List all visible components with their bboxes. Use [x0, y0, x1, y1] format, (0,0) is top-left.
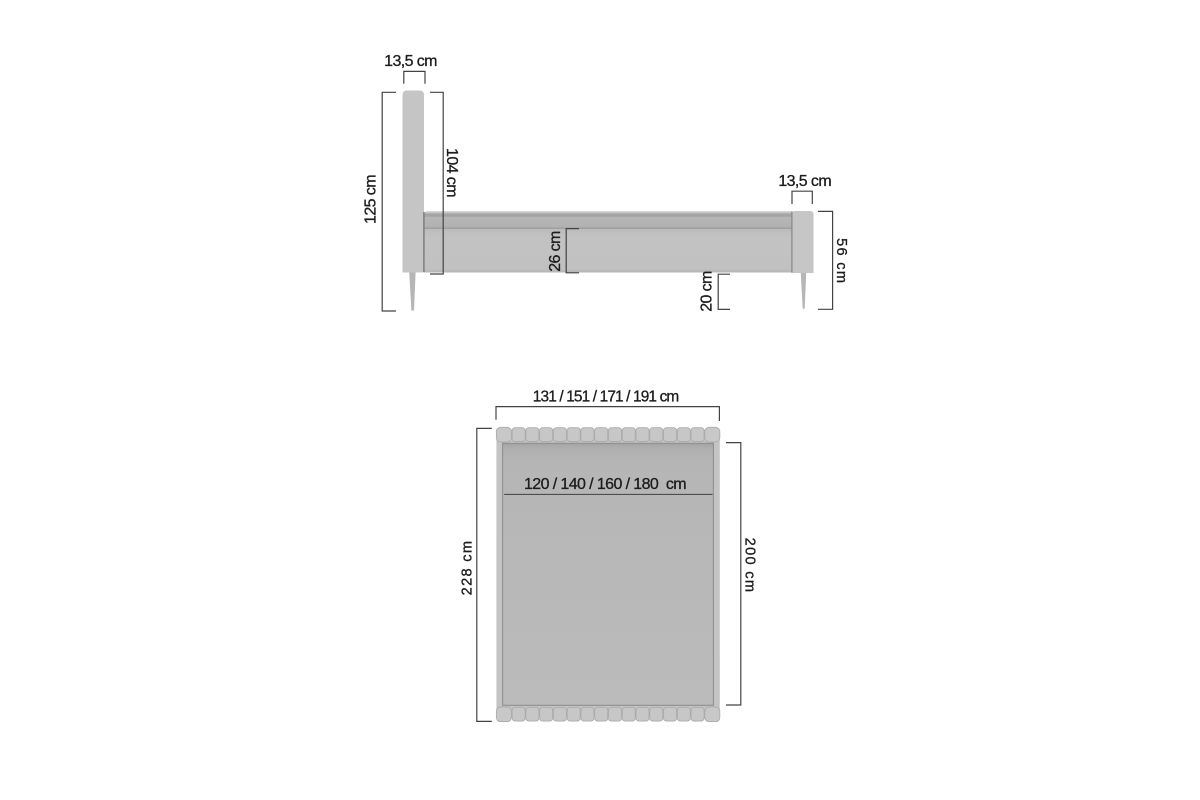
- svg-text:56 cm: 56 cm: [833, 238, 849, 284]
- svg-text:228 cm: 228 cm: [459, 540, 475, 596]
- svg-text:104 cm: 104 cm: [443, 148, 460, 197]
- svg-text:20 cm: 20 cm: [699, 271, 716, 312]
- svg-text:125 cm: 125 cm: [363, 175, 380, 224]
- svg-text:131 / 151 / 171 / 191 cm: 131 / 151 / 171 / 191 cm: [533, 388, 679, 405]
- svg-text:13,5 cm: 13,5 cm: [384, 53, 437, 70]
- svg-text:120 / 140 / 160 / 180 cm: 120 / 140 / 160 / 180 cm: [524, 476, 686, 493]
- svg-text:26 cm: 26 cm: [547, 231, 564, 272]
- svg-text:200 cm: 200 cm: [742, 538, 758, 594]
- svg-text:13,5 cm: 13,5 cm: [778, 173, 831, 190]
